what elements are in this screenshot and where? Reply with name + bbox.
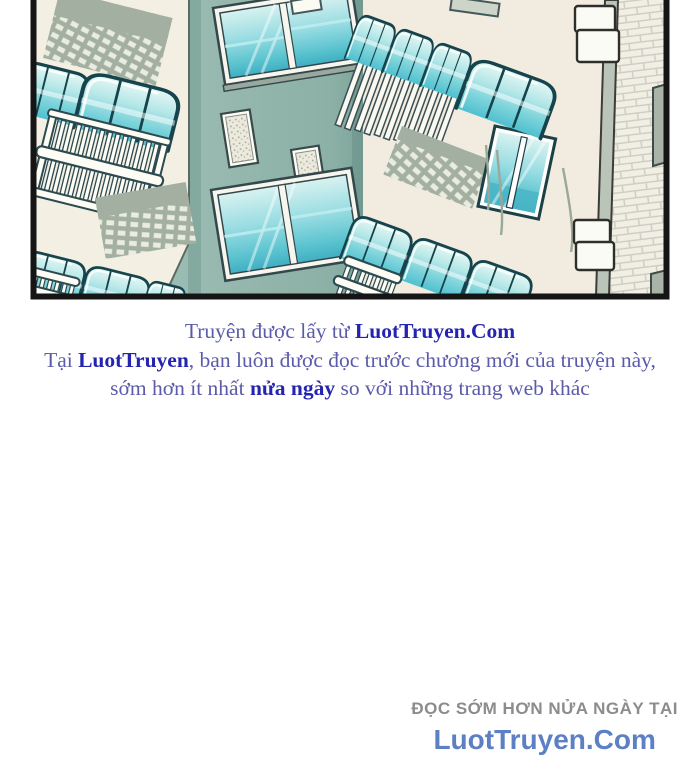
- footer-brand-link[interactable]: LuotTruyen.Com: [411, 724, 678, 756]
- comic-panel: [0, 0, 700, 306]
- notice-text: Truyện được lấy từ: [185, 319, 355, 343]
- notice-line-1: Truyện được lấy từ LuotTruyen.Com: [0, 317, 700, 346]
- source-notice: Truyện được lấy từ LuotTruyen.Com Tại Lu…: [0, 317, 700, 403]
- site-footer: ĐỌC SỚM HƠN NỬA NGÀY TẠI LuotTruyen.Com: [411, 699, 678, 756]
- notice-text: so với những trang web khác: [335, 376, 590, 400]
- wall-box-top: [575, 6, 619, 62]
- page-margin: [669, 0, 700, 306]
- brand-link[interactable]: LuotTruyen.Com: [355, 319, 515, 343]
- notice-line-2: Tại LuotTruyen, bạn luôn được đọc trước …: [0, 346, 700, 375]
- notice-line-3: sớm hơn ít nhất nửa ngày so với những tr…: [0, 374, 700, 403]
- wall-box-bottom: [574, 220, 614, 270]
- left-cream-wall: [12, 0, 196, 306]
- notice-text: , bạn luôn được đọc trước chương mới của…: [189, 348, 656, 372]
- highlight-text: nửa ngày: [250, 376, 335, 400]
- notice-text: sớm hơn ít nhất: [110, 376, 250, 400]
- page-margin: [0, 300, 700, 306]
- notice-text: Tại: [44, 348, 78, 372]
- brand-link[interactable]: LuotTruyen: [78, 348, 189, 372]
- footer-tagline: ĐỌC SỚM HƠN NỬA NGÀY TẠI: [411, 699, 678, 719]
- page-margin: [0, 0, 30, 306]
- right-cream-wall: [330, 0, 613, 306]
- building-illustration: [0, 0, 700, 306]
